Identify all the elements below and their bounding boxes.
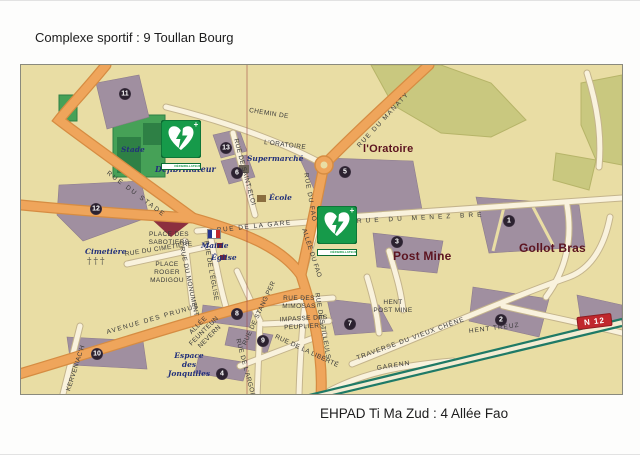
roundabout-center <box>321 162 328 169</box>
place-post-mine: Post Mine <box>393 249 451 263</box>
map-point-2: 2 <box>496 315 507 326</box>
map-point-12: 12 <box>91 204 102 215</box>
page-title: Complexe sportif : 9 Toullan Bourg <box>35 30 233 45</box>
defibrillator-band: DÉFIBRILLATEUR <box>317 249 357 256</box>
poi-eglise: Église <box>211 253 237 262</box>
french-flag-icon <box>207 229 221 239</box>
map-point-3: 3 <box>392 237 403 248</box>
street-impasse-des-peupliers: IMPASSE DES PEUPLIERS <box>271 314 338 334</box>
map-point-6: 6 <box>232 168 243 179</box>
map-point-5: 5 <box>340 167 351 178</box>
town-map: CHEMIN DE L'ORATOIRE RUE DU MANATY RUE D… <box>20 64 623 395</box>
defibrillator-icon: + <box>161 120 201 158</box>
map-point-8: 8 <box>232 309 243 320</box>
svg-text:+: + <box>350 206 355 215</box>
place-l-oratoire: l'Oratoire <box>363 143 413 155</box>
defibrillator-marker-complexe-sportif: + DÉFIBRILLATEUR <box>161 120 201 170</box>
page-caption: EHPAD Ti Ma Zud : 4 Allée Fao <box>320 406 508 421</box>
map-point-11: 11 <box>120 89 131 100</box>
defibrillator-band: DÉFIBRILLATEUR <box>161 163 201 170</box>
map-point-13: 13 <box>221 143 232 154</box>
map-point-10: 10 <box>92 349 103 360</box>
street-place-roger-madigou: PLACE ROGER MADIGOU <box>139 261 195 285</box>
map-point-4: 4 <box>217 369 228 380</box>
school-icon <box>257 195 266 202</box>
poi-espace-des-jonquilles: Espace des Jonquilles <box>161 351 217 378</box>
street-place-des-sabotiers: PLACE DES SABOTIERS <box>139 231 199 247</box>
map-point-7: 7 <box>345 319 356 330</box>
svg-text:+: + <box>194 120 199 129</box>
street-hent-post-mine: HENT POST MINE <box>363 299 423 315</box>
defibrillator-icon: + <box>317 206 357 244</box>
cemetery-crosses-icon: ††† <box>87 257 107 267</box>
scanned-map-page: Complexe sportif : 9 Toullan Bourg <box>0 0 640 455</box>
poi-ecole: École <box>269 193 292 202</box>
map-point-9: 9 <box>258 336 269 347</box>
map-point-1: 1 <box>504 216 515 227</box>
poi-supermarche: Supermarché <box>247 154 303 163</box>
poi-stade: Stade <box>121 145 145 154</box>
place-gollot-bras: Gollot Bras <box>519 241 586 255</box>
poi-cimetiere: Cimetière <box>85 247 126 256</box>
defibrillator-marker-ehpad: + DÉFIBRILLATEUR <box>317 206 357 256</box>
poi-mairie: Mairie <box>201 241 229 250</box>
